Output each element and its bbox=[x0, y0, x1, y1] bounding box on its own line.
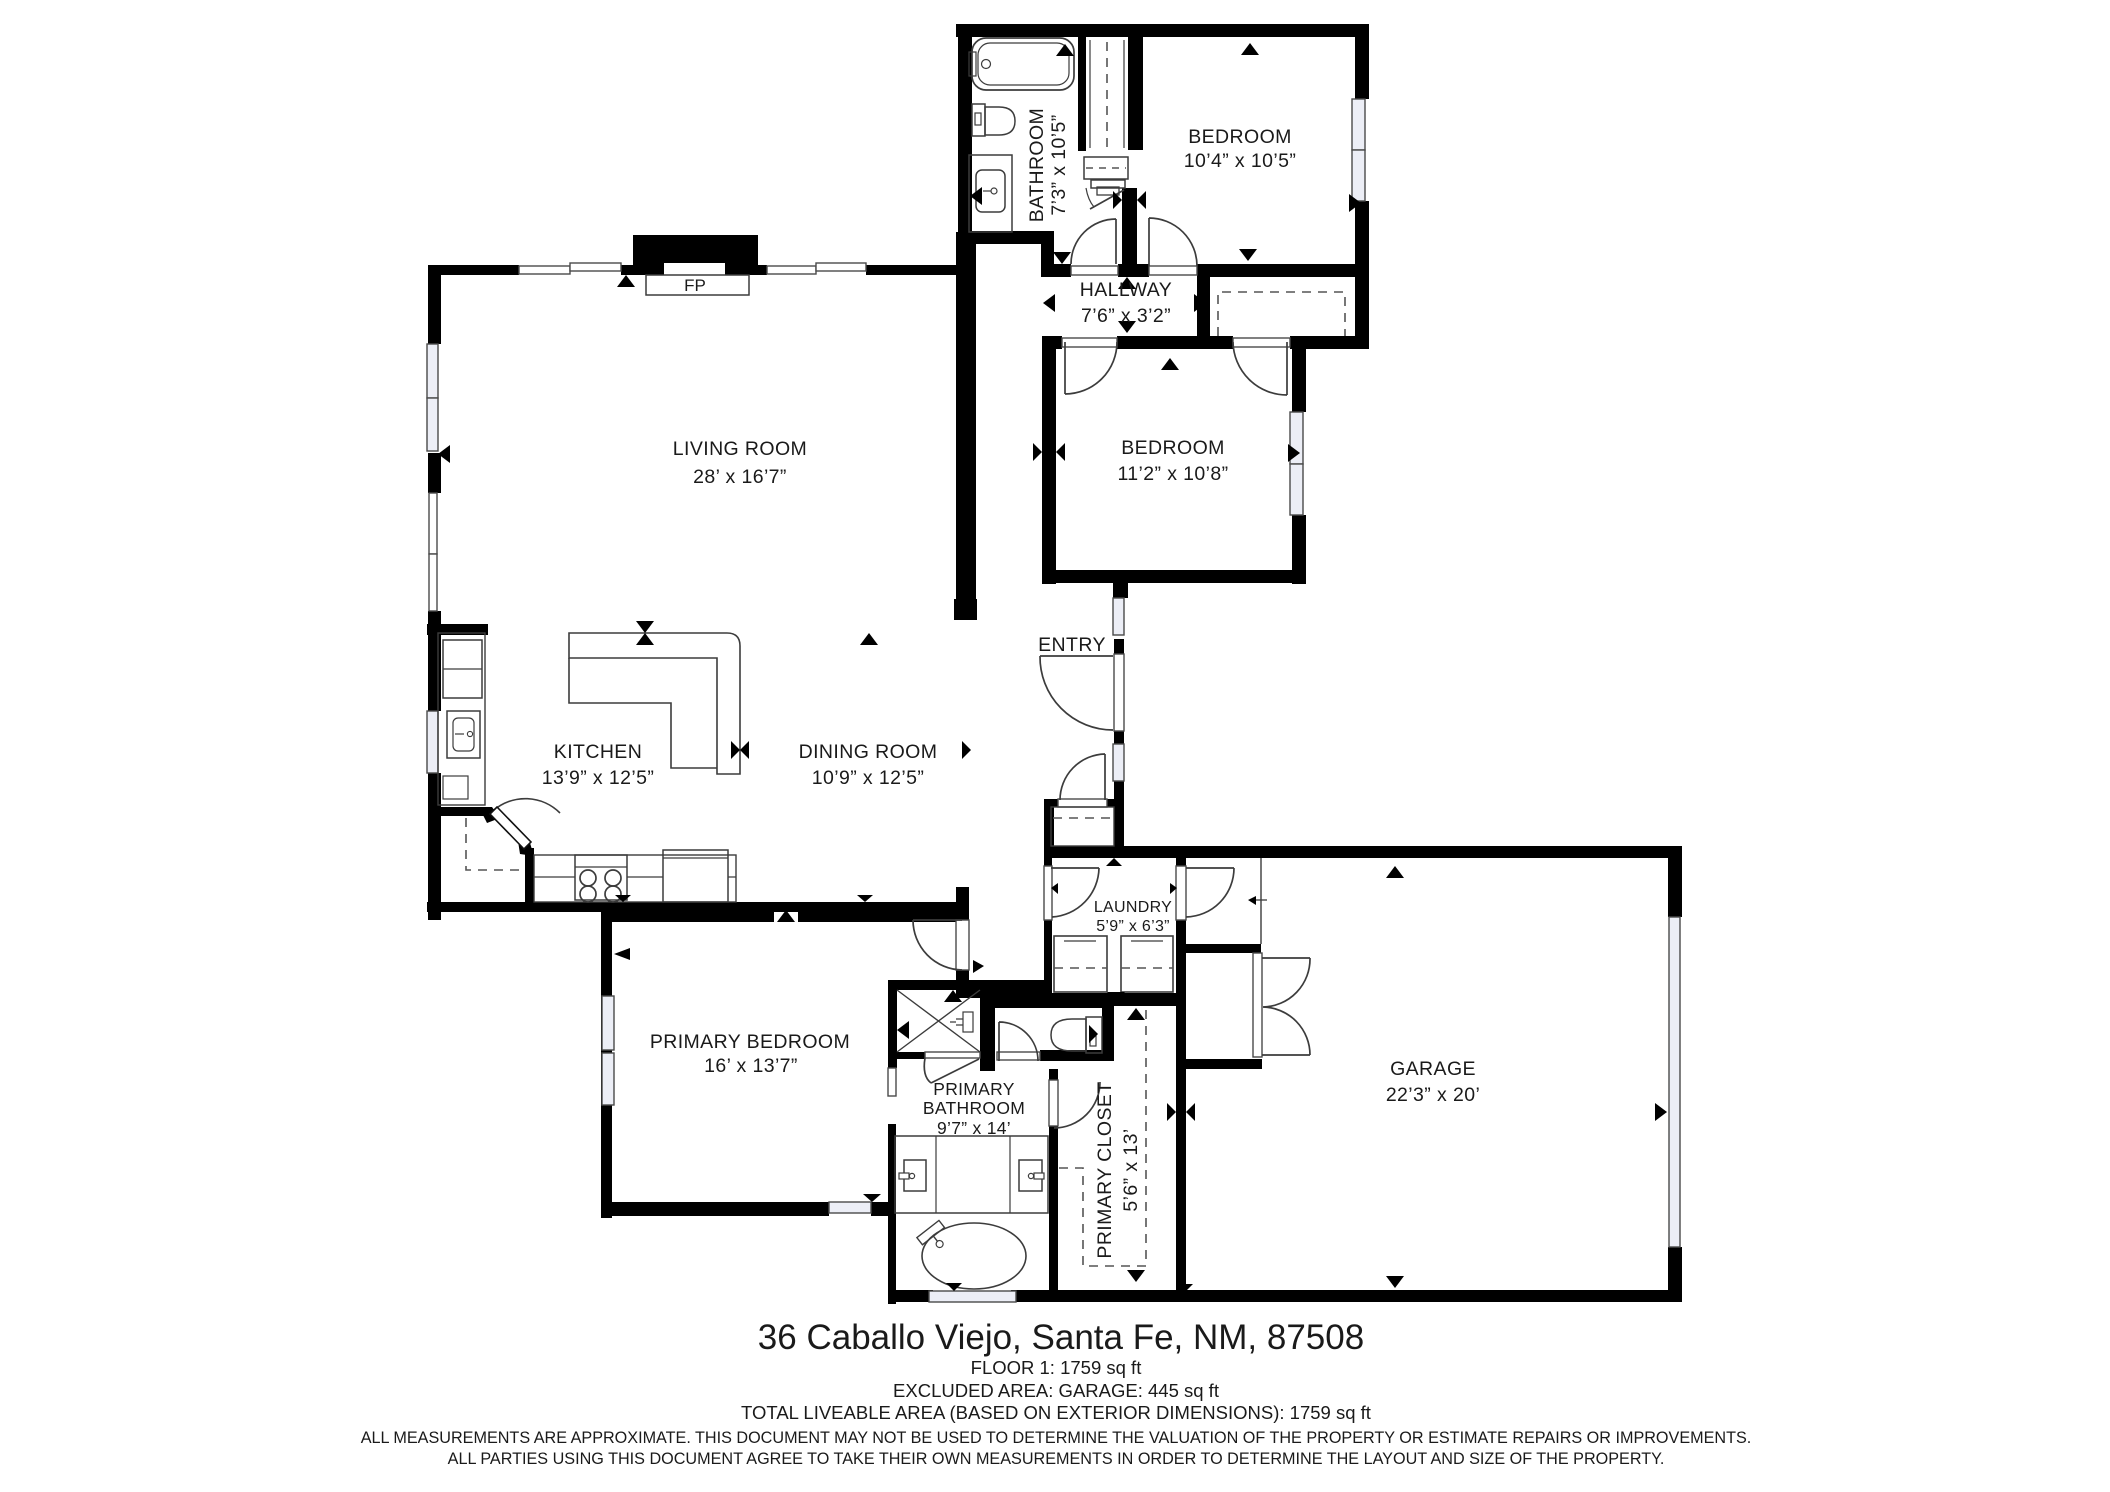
svg-text:HALLWAY: HALLWAY bbox=[1080, 279, 1172, 301]
svg-text:11’2” x 10’8”: 11’2” x 10’8” bbox=[1117, 463, 1228, 485]
svg-text:TOTAL LIVEABLE AREA (BASED ON: TOTAL LIVEABLE AREA (BASED ON EXTERIOR D… bbox=[741, 1402, 1371, 1423]
svg-text:FP: FP bbox=[684, 276, 706, 295]
svg-text:BEDROOM: BEDROOM bbox=[1121, 437, 1225, 459]
svg-text:13’9” x 12’5”: 13’9” x 12’5” bbox=[542, 767, 655, 789]
svg-text:5’6” x 13’: 5’6” x 13’ bbox=[1120, 1128, 1142, 1211]
svg-text:PRIMARY: PRIMARY bbox=[933, 1079, 1015, 1099]
svg-text:LIVING ROOM: LIVING ROOM bbox=[673, 438, 807, 460]
svg-text:KITCHEN: KITCHEN bbox=[554, 741, 642, 763]
svg-text:28’ x 16’7”: 28’ x 16’7” bbox=[693, 466, 787, 488]
svg-text:DINING ROOM: DINING ROOM bbox=[799, 741, 938, 763]
svg-text:FLOOR 1: 1759 sq ft: FLOOR 1: 1759 sq ft bbox=[971, 1357, 1142, 1378]
svg-text:ENTRY: ENTRY bbox=[1038, 634, 1106, 656]
svg-text:22’3” x 20’: 22’3” x 20’ bbox=[1386, 1084, 1480, 1106]
svg-text:7’6” x 3’2”: 7’6” x 3’2” bbox=[1081, 305, 1171, 327]
svg-text:5’9” x 6’3”: 5’9” x 6’3” bbox=[1096, 918, 1170, 935]
svg-text:9’7” x 14’: 9’7” x 14’ bbox=[937, 1118, 1011, 1138]
svg-text:7’3” x 10’5”: 7’3” x 10’5” bbox=[1048, 114, 1070, 215]
svg-text:GARAGE: GARAGE bbox=[1390, 1058, 1476, 1080]
svg-text:BATHROOM: BATHROOM bbox=[923, 1098, 1025, 1118]
svg-text:16’ x 13’7”: 16’ x 13’7” bbox=[704, 1055, 798, 1077]
svg-text:10’4” x 10’5”: 10’4” x 10’5” bbox=[1184, 150, 1297, 172]
svg-text:PRIMARY BEDROOM: PRIMARY BEDROOM bbox=[650, 1031, 850, 1053]
svg-text:ALL PARTIES USING THIS DOCUMEN: ALL PARTIES USING THIS DOCUMENT AGREE TO… bbox=[448, 1450, 1665, 1468]
svg-text:10’9” x 12’5”: 10’9” x 12’5” bbox=[812, 767, 925, 789]
svg-text:36 Caballo Viejo, Santa Fe, NM: 36 Caballo Viejo, Santa Fe, NM, 87508 bbox=[758, 1318, 1364, 1357]
svg-text:EXCLUDED AREA: GARAGE: 445 sq: EXCLUDED AREA: GARAGE: 445 sq ft bbox=[893, 1380, 1219, 1401]
svg-text:BATHROOM: BATHROOM bbox=[1026, 108, 1048, 222]
svg-text:ALL MEASUREMENTS ARE APPROXIMA: ALL MEASUREMENTS ARE APPROXIMATE. THIS D… bbox=[361, 1429, 1752, 1447]
svg-text:BEDROOM: BEDROOM bbox=[1188, 126, 1292, 148]
svg-text:LAUNDRY: LAUNDRY bbox=[1094, 899, 1172, 916]
svg-text:PRIMARY CLOSET: PRIMARY CLOSET bbox=[1094, 1081, 1116, 1258]
